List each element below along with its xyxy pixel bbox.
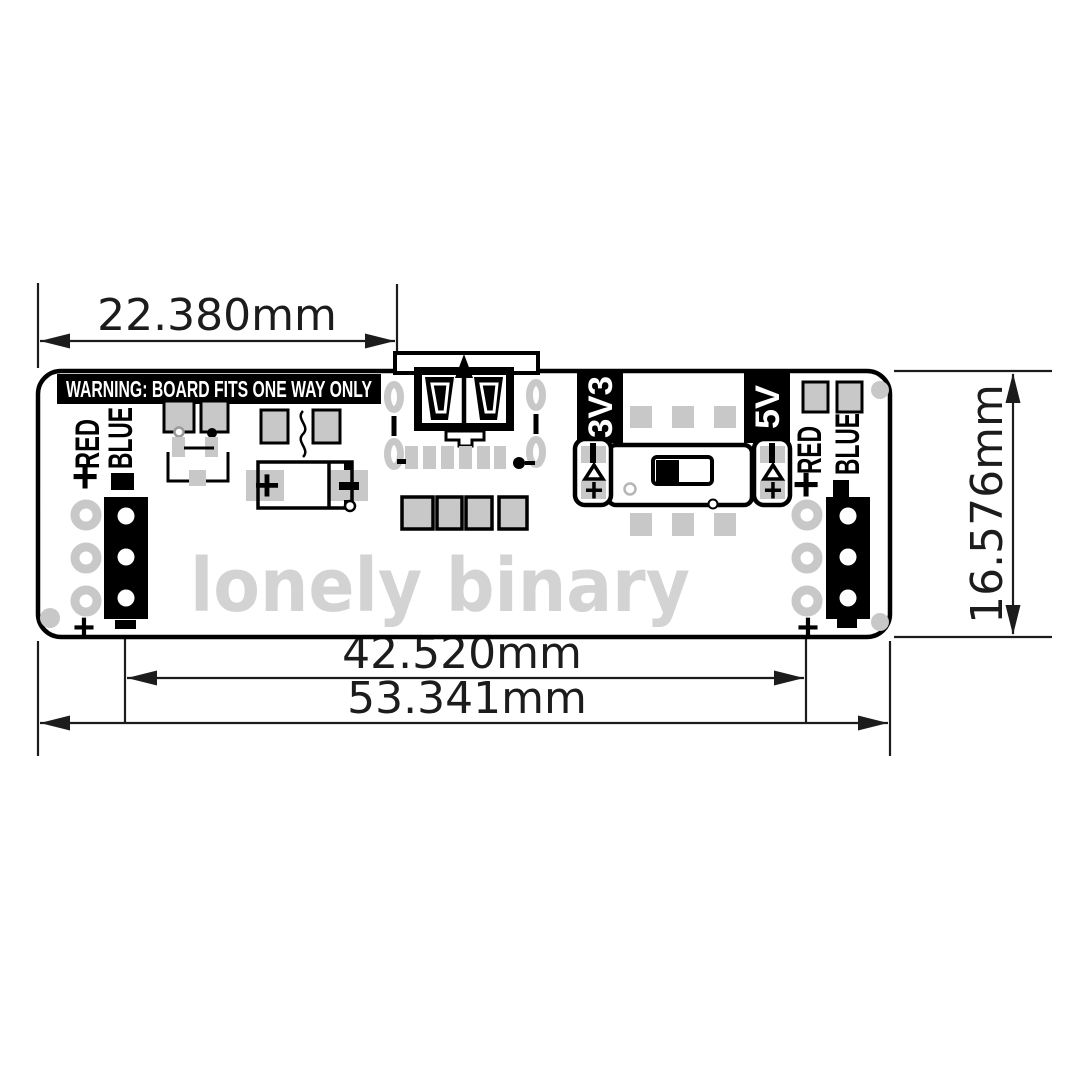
corner-mark	[344, 462, 353, 470]
smd-pad	[803, 382, 828, 412]
usb-lower-pads	[402, 497, 527, 529]
dash-mark	[525, 461, 535, 465]
pcb-board: WARNING: BOARD FITS ONE WAY ONLY lonely …	[38, 353, 890, 649]
arrowhead	[40, 334, 70, 349]
minus-mark	[769, 443, 775, 463]
pin-hole	[118, 590, 135, 607]
warning-text: WARNING: BOARD FITS ONE WAY ONLY	[66, 376, 372, 402]
pin-dot	[207, 428, 217, 438]
left-bottom-plus: +	[73, 607, 95, 649]
3v3-label: 3V3	[582, 376, 620, 438]
minus-mark	[115, 620, 136, 629]
switch-hole	[709, 500, 718, 509]
smd-pad	[837, 382, 862, 412]
watermark-text: lonely binary	[190, 543, 690, 629]
slide-switch	[608, 445, 752, 509]
terminal-plus: +	[585, 472, 604, 508]
pin-hole	[840, 549, 857, 566]
arrowhead	[774, 671, 804, 686]
dimension-board-width: 53.341mm	[347, 673, 587, 724]
right-bottom-plus: +	[797, 607, 819, 649]
dimension-board-height: 16.576mm	[962, 384, 1013, 624]
minus-mark	[837, 619, 857, 628]
dimension-usb-offset: 22.380mm	[97, 290, 337, 341]
left-blue-label: BLUE	[102, 407, 140, 469]
right-blue-label: BLUE	[829, 413, 867, 475]
arrowhead	[365, 334, 395, 349]
inductor-pad	[261, 410, 288, 443]
switch-lower-pads	[630, 513, 736, 536]
pin-hole	[118, 508, 135, 525]
terminal-plus: +	[764, 472, 783, 508]
capacitor-plus: +	[254, 461, 280, 510]
5v-label: 5V	[749, 385, 787, 429]
pcb-dimension-drawing: 22.380mm 42.520mm 53.341mm 16.576mm WARN…	[0, 0, 1090, 1090]
minus-mark	[339, 482, 359, 490]
left-rail: RED + BLUE +	[69, 407, 148, 649]
switch-knob	[656, 460, 679, 482]
switch-terminal-left: +	[575, 439, 611, 508]
pin1-dot	[175, 428, 184, 437]
switch-hole	[625, 484, 636, 495]
smd-pad	[172, 437, 185, 457]
dash-mark	[397, 459, 406, 464]
mounting-hole	[871, 613, 889, 631]
arrowhead	[40, 716, 70, 731]
smd-pad	[189, 470, 206, 486]
pin-hole	[118, 549, 135, 566]
minus-mark	[111, 473, 134, 490]
pin-dot	[513, 457, 525, 469]
smd-pad	[201, 401, 228, 432]
switch-terminal-right: +	[754, 439, 790, 508]
arrowhead	[127, 671, 157, 686]
mounting-hole	[40, 608, 60, 628]
inductor-pad	[313, 410, 340, 443]
pin-hole	[840, 508, 857, 525]
minus-mark	[590, 443, 596, 463]
mounting-hole	[871, 381, 889, 399]
left-red-plus: +	[72, 450, 99, 502]
pin-hole	[840, 590, 857, 607]
switch-upper-pads	[630, 406, 736, 428]
pin1-dot	[345, 501, 355, 511]
arrowhead	[858, 716, 888, 731]
